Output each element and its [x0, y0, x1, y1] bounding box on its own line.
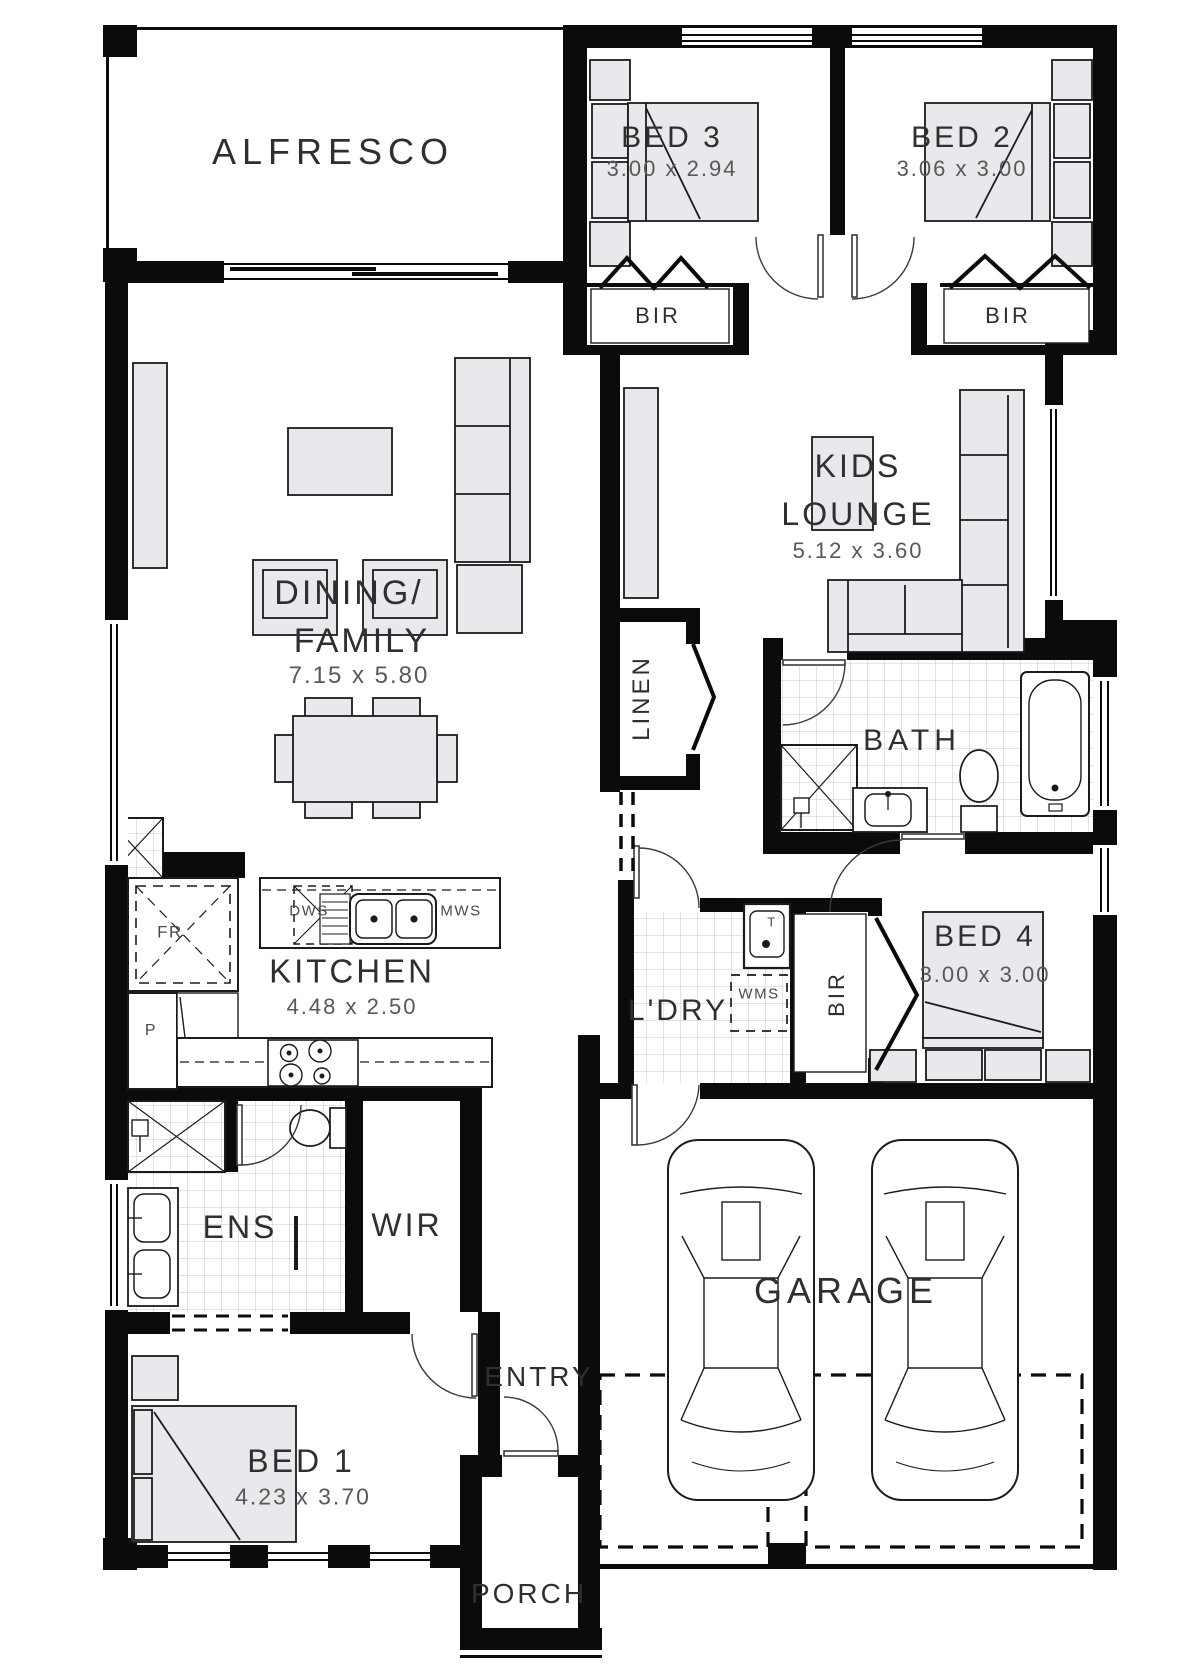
linen-bifold — [693, 644, 714, 750]
label-porch: PORCH — [471, 1580, 587, 1608]
label-bed4-dims: 3.00 x 3.00 — [920, 964, 1051, 986]
fridge-space — [128, 878, 238, 991]
label-bed2: BED 2 — [911, 123, 1013, 153]
label-entry: ENTRY — [484, 1363, 593, 1391]
label-kids-lounge-1: KIDS — [815, 450, 902, 482]
label-bir-bed2: BIR — [985, 305, 1031, 327]
label-bed3-dims: 3.00 x 2.94 — [607, 158, 738, 180]
label-bath: BATH — [863, 726, 961, 756]
bathtub — [1021, 672, 1089, 816]
label-alfresco: ALFRESCO — [212, 134, 454, 170]
floor-plan-drawing — [0, 0, 1200, 1680]
label-laundry: L'DRY — [628, 996, 728, 1026]
label-linen: LINEN — [630, 655, 654, 741]
label-dining-1: DINING/ — [274, 576, 423, 610]
label-bed1: BED 1 — [247, 1445, 354, 1477]
bed2-door — [852, 235, 914, 299]
towel-rail — [294, 1216, 298, 1270]
car-left — [668, 1140, 814, 1500]
label-kitchen: KITCHEN — [269, 955, 435, 988]
bed1-door — [412, 1334, 477, 1398]
bath-toilet — [960, 750, 998, 832]
label-pantry: P — [145, 1023, 157, 1039]
laundry-door — [634, 846, 699, 908]
label-dining-dims: 7.15 x 5.80 — [289, 664, 430, 688]
label-trough: T — [767, 916, 776, 929]
label-bed2-dims: 3.06 x 3.00 — [897, 158, 1028, 180]
car-right — [872, 1140, 1018, 1500]
label-kitchen-dims: 4.48 x 2.50 — [287, 996, 418, 1018]
label-garage: GARAGE — [754, 1273, 938, 1309]
label-fridge: FR — [157, 924, 183, 941]
label-wir: WIR — [371, 1209, 442, 1241]
kitchen-bench — [177, 1038, 492, 1087]
label-bir-bed4: BIR — [826, 971, 848, 1017]
ens-vanity — [128, 1188, 178, 1306]
label-kids-lounge-2: LOUNGE — [781, 498, 934, 530]
label-mws: MWS — [440, 904, 481, 919]
bed3-door — [756, 235, 823, 299]
bath-vanity — [853, 788, 927, 832]
sliding-door — [224, 261, 508, 283]
label-bed3: BED 3 — [621, 123, 723, 153]
label-dining-2: FAMILY — [294, 624, 430, 658]
label-wms: WMS — [738, 987, 779, 1002]
label-kids-lounge-dims: 5.12 x 3.60 — [793, 540, 924, 562]
front-door — [504, 1397, 558, 1456]
label-bir-bed3: BIR — [635, 305, 681, 327]
bed4-robe-bifold — [876, 918, 917, 1070]
floor-plan: ALFRESCO BED 3 3.00 x 2.94 BED 2 3.06 x … — [0, 0, 1200, 1680]
label-ens: ENS — [203, 1211, 278, 1243]
label-dws: DWS — [289, 904, 329, 919]
dining-table — [275, 698, 457, 818]
ens-toilet — [290, 1108, 346, 1148]
label-bed4: BED 4 — [934, 922, 1036, 952]
label-bed1-dims: 4.23 x 3.70 — [235, 1486, 371, 1509]
